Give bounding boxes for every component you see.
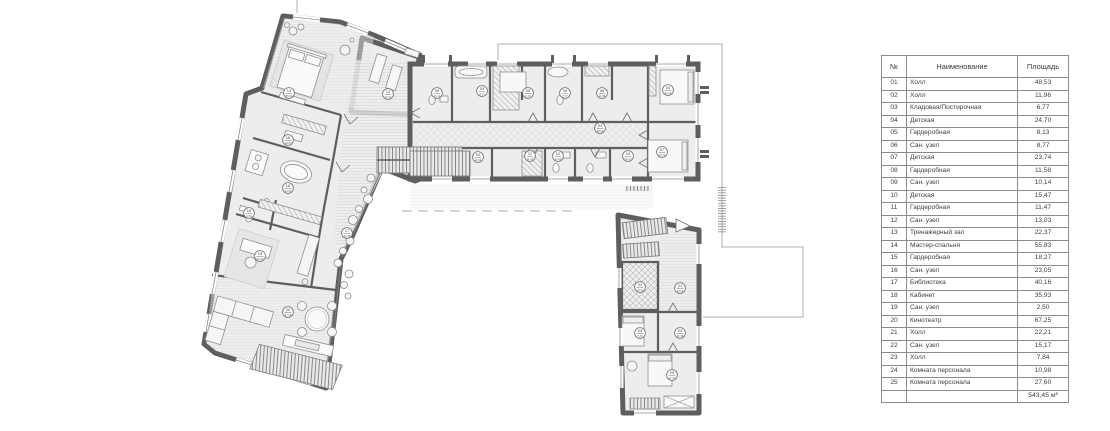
svg-text:13,03: 13,03 (555, 157, 562, 161)
svg-text:01: 01 (598, 123, 603, 128)
room-name: Гардеробная (907, 128, 1018, 141)
room-area: 23,05 (1018, 265, 1069, 278)
legend-row: 20 Кинотеатр 67,25 (882, 315, 1069, 328)
plan-svg: 0148,530211,96036,770424,70058,13068,770… (0, 0, 880, 431)
room-area: 11,47 (1018, 203, 1069, 216)
room-area: 24,70 (1018, 115, 1069, 128)
svg-text:23: 23 (638, 328, 643, 333)
room-number: 21 (882, 328, 907, 341)
room-number: 09 (882, 178, 907, 191)
room-number: 22 (882, 340, 907, 353)
header-area: Площадь (1018, 56, 1069, 78)
svg-text:24,70: 24,70 (665, 91, 672, 95)
room-area: 67,25 (1018, 315, 1069, 328)
room-number: 10 (882, 190, 907, 203)
svg-text:22,37: 22,37 (385, 95, 392, 99)
svg-text:8,77: 8,77 (562, 94, 568, 98)
svg-text:25: 25 (670, 370, 675, 375)
room-name: Сан. узел (907, 265, 1018, 278)
svg-text:05: 05 (526, 88, 531, 93)
secondary-staircase (410, 151, 470, 176)
room-area: 13,03 (1018, 215, 1069, 228)
svg-text:18,27: 18,27 (285, 141, 292, 145)
room-name: Холл (907, 78, 1018, 91)
detached-block (618, 215, 699, 413)
svg-text:09: 09 (435, 88, 440, 93)
svg-text:15,17: 15,17 (637, 288, 644, 292)
room-area: 6,77 (1018, 103, 1069, 116)
room-name: Холл (907, 353, 1018, 366)
room-name: Кабинет (907, 290, 1018, 303)
legend-row: 13 Тренажерный зал 22,37 (882, 228, 1069, 241)
room-area: 22,21 (1018, 328, 1069, 341)
header-num: № (882, 56, 907, 78)
room-number: 06 (882, 140, 907, 153)
room-number: 08 (882, 165, 907, 178)
deck (410, 184, 653, 209)
diagonal-wing (204, 16, 420, 390)
room-number: 24 (882, 365, 907, 378)
svg-text:04: 04 (666, 85, 671, 90)
legend-row: 05 Гардеробная 8,13 (882, 128, 1069, 141)
room-name: Тренажерный зал (907, 228, 1018, 241)
room-number: 04 (882, 115, 907, 128)
room-number: 17 (882, 278, 907, 291)
room-name: Сан. узел (907, 303, 1018, 316)
svg-text:8,13: 8,13 (525, 94, 531, 98)
svg-text:48,53: 48,53 (597, 129, 604, 133)
room-area: 22,37 (1018, 228, 1069, 241)
room-name: Библиотека (907, 278, 1018, 291)
room-area: 18,27 (1018, 253, 1069, 266)
svg-text:67,25: 67,25 (285, 313, 292, 317)
room-number: 15 (882, 253, 907, 266)
legend-row: 11 Гардеробная 11,47 (882, 203, 1069, 216)
svg-text:18: 18 (258, 251, 263, 256)
svg-text:55,83: 55,83 (286, 94, 293, 98)
room-name: Кладовая/Постирочная (907, 103, 1018, 116)
room-name: Мастер-спальня (907, 240, 1018, 253)
room-name: Холл (907, 90, 1018, 103)
room-number: 05 (882, 128, 907, 141)
legend-total-row: 543,45 м² (882, 390, 1069, 403)
legend-row: 04 Детская 24,70 (882, 115, 1069, 128)
total-area: 543,45 м² (1018, 390, 1069, 403)
svg-text:12: 12 (556, 151, 561, 156)
room-area: 15,17 (1018, 340, 1069, 353)
room-name: Гардеробная (907, 165, 1018, 178)
svg-text:10,14: 10,14 (434, 94, 441, 98)
svg-text:19: 19 (247, 208, 252, 213)
room-name: Детская (907, 153, 1018, 166)
room-number: 25 (882, 378, 907, 391)
room-area: 35,93 (1018, 290, 1069, 303)
svg-text:17: 17 (345, 228, 350, 233)
room-number: 20 (882, 315, 907, 328)
svg-text:11,47: 11,47 (527, 157, 534, 161)
floor-plan-sheet: 0148,530211,96036,770424,70058,13068,770… (0, 0, 1110, 431)
room-area: 15,47 (1018, 190, 1069, 203)
room-area: 11,96 (1018, 90, 1069, 103)
floor-plan: 0148,530211,96036,770424,70058,13068,770… (0, 0, 880, 431)
room-area: 8,77 (1018, 140, 1069, 153)
corridor-floor (413, 122, 648, 148)
legend-row: 10 Детская 15,47 (882, 190, 1069, 203)
svg-text:07: 07 (660, 147, 665, 152)
room-number: 12 (882, 215, 907, 228)
svg-text:08: 08 (600, 88, 605, 93)
room-area: 7,84 (1018, 353, 1069, 366)
svg-text:16: 16 (286, 183, 291, 188)
svg-text:15: 15 (286, 135, 291, 140)
legend-row: 17 Библиотека 40,16 (882, 278, 1069, 291)
legend-row: 01 Холл 48,53 (882, 78, 1069, 91)
legend-row: 22 Сан. узел 15,17 (882, 340, 1069, 353)
legend-row: 18 Кабинет 35,93 (882, 290, 1069, 303)
room-name: Гардеробная (907, 253, 1018, 266)
room-name: Комната персонала (907, 378, 1018, 391)
legend-row: 21 Холл 22,21 (882, 328, 1069, 341)
room-number: 18 (882, 290, 907, 303)
legend-row: 24 Комната персонала 10,98 (882, 365, 1069, 378)
svg-text:10,98: 10,98 (677, 334, 684, 338)
room-number: 02 (882, 90, 907, 103)
legend-row: 23 Холл 7,84 (882, 353, 1069, 366)
room-number: 01 (882, 78, 907, 91)
legend-header-row: № Наименование Площадь (882, 56, 1069, 78)
room-name: Сан. узел (907, 140, 1018, 153)
svg-text:24: 24 (678, 328, 683, 333)
legend-row: 14 Мастер-спальня 55,83 (882, 240, 1069, 253)
svg-text:10: 10 (626, 151, 631, 156)
room-name: Детская (907, 115, 1018, 128)
svg-text:20: 20 (286, 307, 291, 312)
room-name: Холл (907, 328, 1018, 341)
legend-row: 03 Кладовая/Постирочная 6,77 (882, 103, 1069, 116)
svg-text:06: 06 (563, 88, 568, 93)
svg-text:22: 22 (638, 282, 643, 287)
hall21-floor (660, 234, 696, 310)
deck-comb (625, 186, 649, 191)
room-area: 11,58 (1018, 165, 1069, 178)
svg-text:02: 02 (476, 152, 481, 157)
legend-row: 02 Холл 11,96 (882, 90, 1069, 103)
svg-text:2,50: 2,50 (246, 214, 252, 218)
room-area: 40,16 (1018, 278, 1069, 291)
room-area: 8,13 (1018, 128, 1069, 141)
legend-row: 19 Сан. узел 2,50 (882, 303, 1069, 316)
svg-text:15,47: 15,47 (625, 157, 632, 161)
svg-text:27,60: 27,60 (669, 376, 676, 380)
svg-text:23,05: 23,05 (285, 189, 292, 193)
room-number: 19 (882, 303, 907, 316)
room-number: 11 (882, 203, 907, 216)
room-area: 10,98 (1018, 365, 1069, 378)
svg-text:11,58: 11,58 (599, 94, 606, 98)
legend-row: 16 Сан. узел 23,05 (882, 265, 1069, 278)
room-number: 13 (882, 228, 907, 241)
room-name: Сан. узел (907, 178, 1018, 191)
svg-text:13: 13 (386, 89, 391, 94)
room-number: 03 (882, 103, 907, 116)
svg-text:23,74: 23,74 (659, 153, 666, 157)
room-name: Комната персонала (907, 365, 1018, 378)
svg-text:03: 03 (480, 86, 485, 91)
legend-row: 09 Сан. узел 10,14 (882, 178, 1069, 191)
room-name: Детская (907, 190, 1018, 203)
room-area: 2,50 (1018, 303, 1069, 316)
legend-row: 07 Детская 23,74 (882, 153, 1069, 166)
svg-text:40,16: 40,16 (344, 234, 351, 238)
room-area: 23,74 (1018, 153, 1069, 166)
legend-row: 06 Сан. узел 8,77 (882, 140, 1069, 153)
legend-row: 08 Гардеробная 11,58 (882, 165, 1069, 178)
legend-row: 25 Комната персонала 27,60 (882, 378, 1069, 391)
room-number: 16 (882, 265, 907, 278)
svg-text:21: 21 (678, 283, 683, 288)
header-name: Наименование (907, 56, 1018, 78)
svg-text:14: 14 (287, 88, 292, 93)
room-name: Сан. узел (907, 340, 1018, 353)
room-area: 27,60 (1018, 378, 1069, 391)
svg-text:7,84: 7,84 (637, 334, 643, 338)
room-area: 48,53 (1018, 78, 1069, 91)
svg-text:22,21: 22,21 (677, 289, 684, 293)
room-name: Гардеробная (907, 203, 1018, 216)
legend-row: 15 Гардеробная 18,27 (882, 253, 1069, 266)
svg-text:11,96: 11,96 (475, 158, 482, 162)
legend-table: № Наименование Площадь 01 Холл 48,53 02 (881, 55, 1067, 403)
room-area: 10,14 (1018, 178, 1069, 191)
room-name: Сан. узел (907, 215, 1018, 228)
room-area: 55,83 (1018, 240, 1069, 253)
svg-text:6,77: 6,77 (479, 92, 485, 96)
room-number: 14 (882, 240, 907, 253)
ruler-ticks (718, 187, 726, 233)
room-number: 23 (882, 353, 907, 366)
room-number: 07 (882, 153, 907, 166)
room-name: Кинотеатр (907, 315, 1018, 328)
legend-row: 12 Сан. узел 13,03 (882, 215, 1069, 228)
svg-text:35,93: 35,93 (257, 257, 264, 261)
